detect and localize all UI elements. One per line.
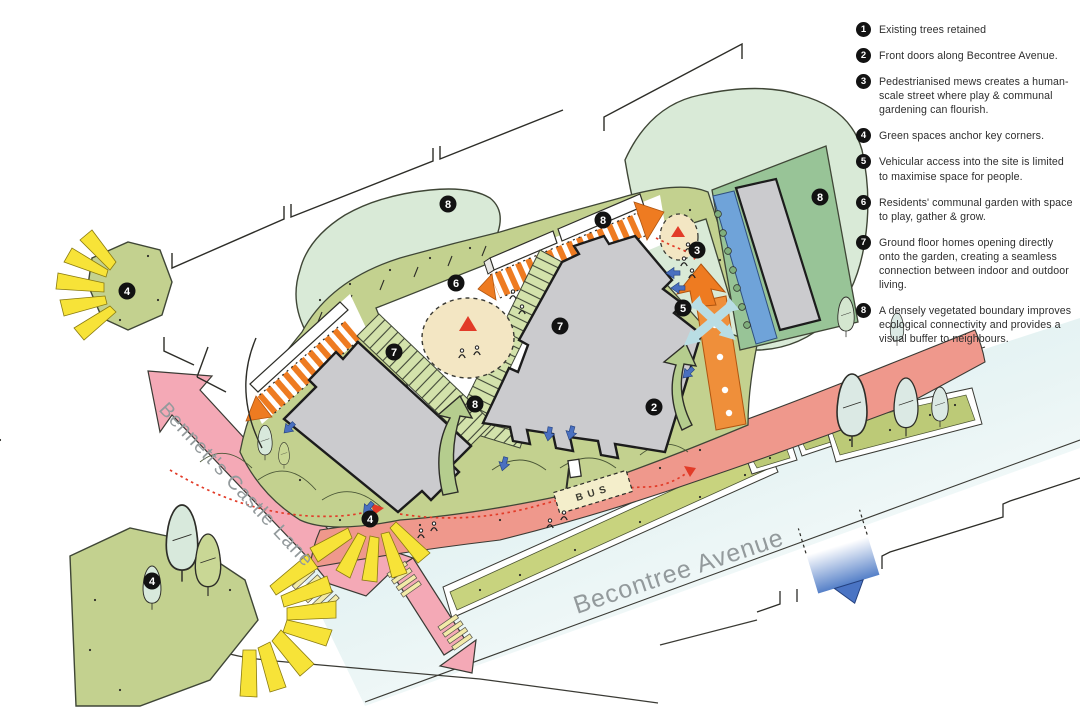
legend-text-6: Residents' communal garden with space to… bbox=[879, 195, 1074, 224]
legend-item-7: 7Ground floor homes opening directly ont… bbox=[856, 235, 1074, 292]
green-corner-southwest bbox=[70, 528, 258, 706]
badge: 4 bbox=[124, 286, 131, 298]
legend-badge-3: 3 bbox=[856, 74, 871, 89]
badge: 8 bbox=[472, 399, 478, 411]
legend-text-8: A densely vegetated boundary improves ec… bbox=[879, 303, 1074, 346]
legend-text-5: Vehicular access into the site is limite… bbox=[879, 154, 1074, 183]
legend-badge-7: 7 bbox=[856, 235, 871, 250]
legend-badge-5: 5 bbox=[856, 154, 871, 169]
legend-item-3: 3Pedestrianised mews creates a human-sca… bbox=[856, 74, 1074, 117]
play-space-central bbox=[422, 298, 514, 378]
badge: 4 bbox=[149, 576, 156, 588]
badge: 7 bbox=[557, 321, 563, 333]
legend-badge-4: 4 bbox=[856, 128, 871, 143]
badge: 6 bbox=[453, 278, 459, 290]
legend-item-1: 1Existing trees retained bbox=[856, 22, 1074, 37]
badge: 3 bbox=[694, 245, 700, 257]
legend-text-4: Green spaces anchor key corners. bbox=[879, 128, 1044, 143]
legend-text-7: Ground floor homes opening directly onto… bbox=[879, 235, 1074, 292]
legend-item-5: 5Vehicular access into the site is limit… bbox=[856, 154, 1074, 183]
legend: 1Existing trees retained 2Front doors al… bbox=[856, 22, 1074, 357]
legend-item-6: 6Residents' communal garden with space t… bbox=[856, 195, 1074, 224]
legend-item-8: 8A densely vegetated boundary improves e… bbox=[856, 303, 1074, 346]
legend-badge-8: 8 bbox=[856, 303, 871, 318]
badge: 7 bbox=[391, 347, 397, 359]
badge: 8 bbox=[600, 215, 606, 227]
legend-badge-2: 2 bbox=[856, 48, 871, 63]
badge: 4 bbox=[367, 514, 374, 526]
badge: 5 bbox=[680, 303, 686, 315]
legend-item-2: 2Front doors along Becontree Avenue. bbox=[856, 48, 1074, 63]
legend-text-3: Pedestrianised mews creates a human-scal… bbox=[879, 74, 1074, 117]
site-plan-page: BUS Bennett's Castle Lane Becontree Aven… bbox=[0, 0, 1080, 708]
legend-text-1: Existing trees retained bbox=[879, 22, 986, 37]
legend-badge-6: 6 bbox=[856, 195, 871, 210]
badge: 8 bbox=[817, 192, 823, 204]
badge: 8 bbox=[445, 199, 451, 211]
legend-text-2: Front doors along Becontree Avenue. bbox=[879, 48, 1058, 63]
badge: 2 bbox=[651, 402, 657, 414]
legend-badge-1: 1 bbox=[856, 22, 871, 37]
legend-item-4: 4Green spaces anchor key corners. bbox=[856, 128, 1074, 143]
